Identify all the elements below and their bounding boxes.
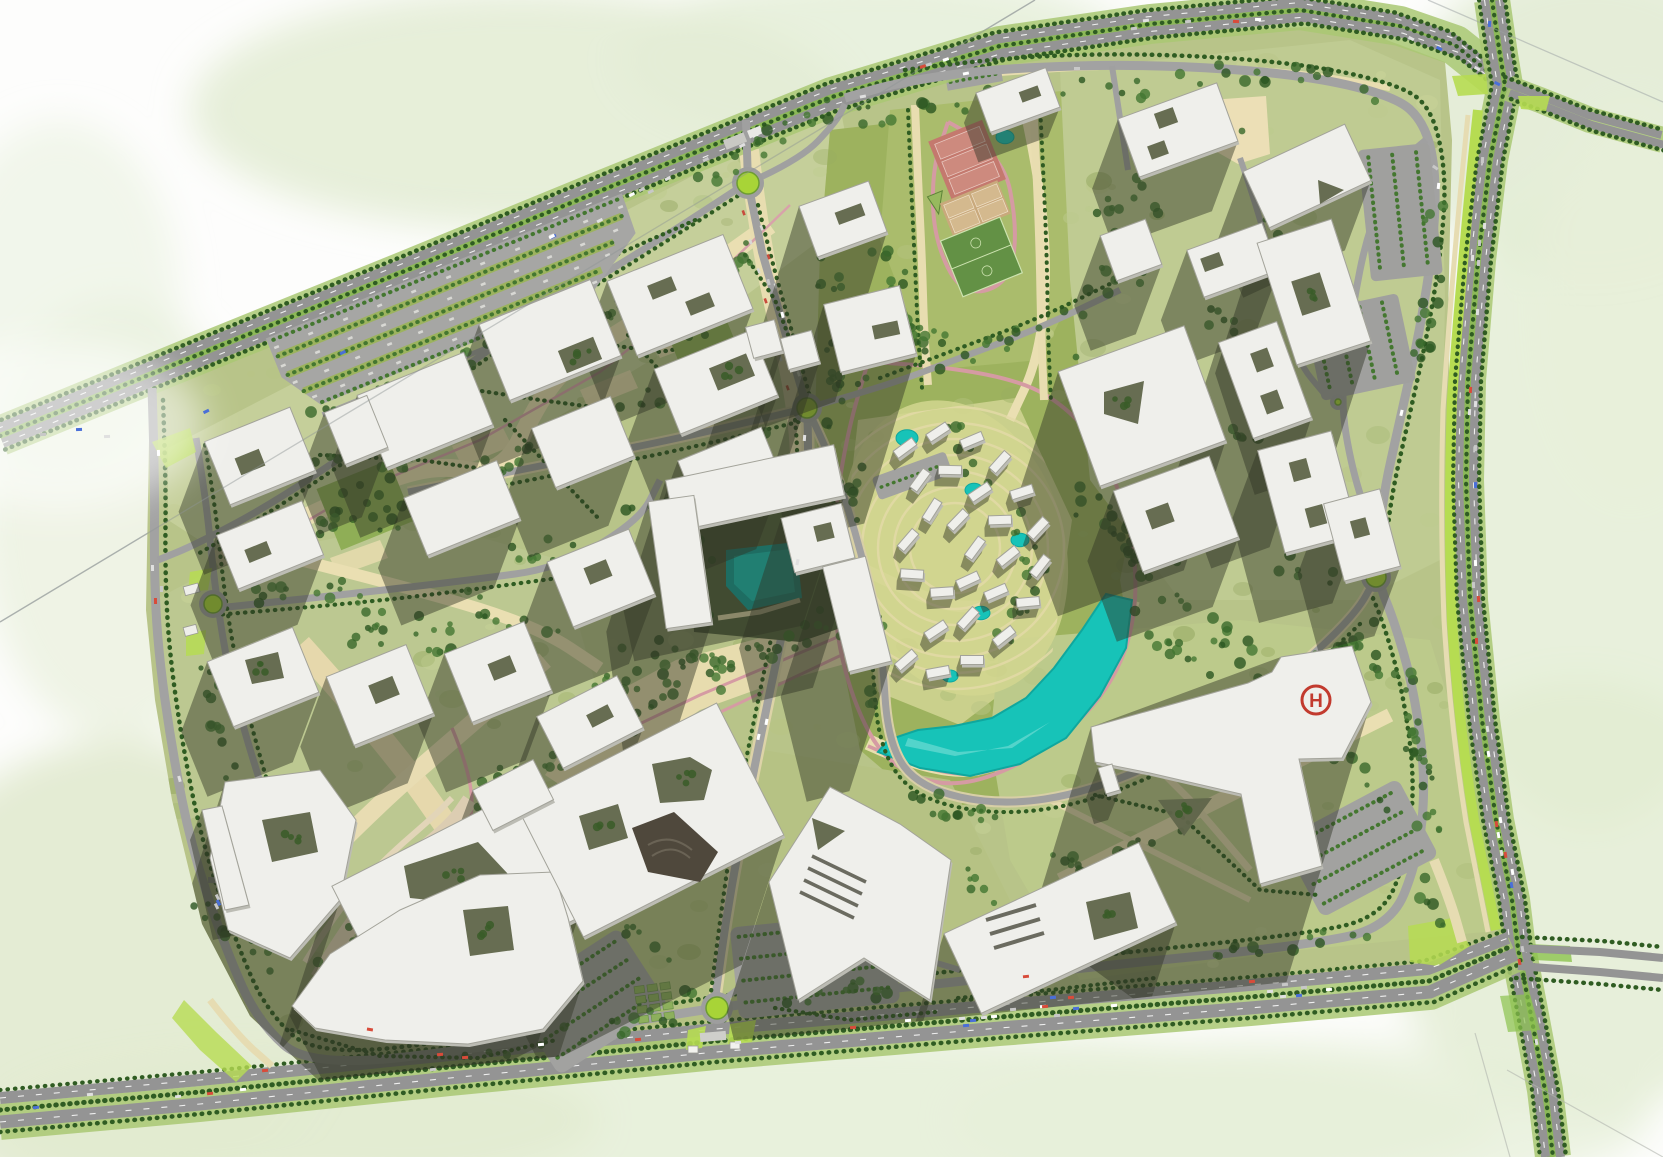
svg-text:H: H bbox=[1309, 691, 1323, 712]
